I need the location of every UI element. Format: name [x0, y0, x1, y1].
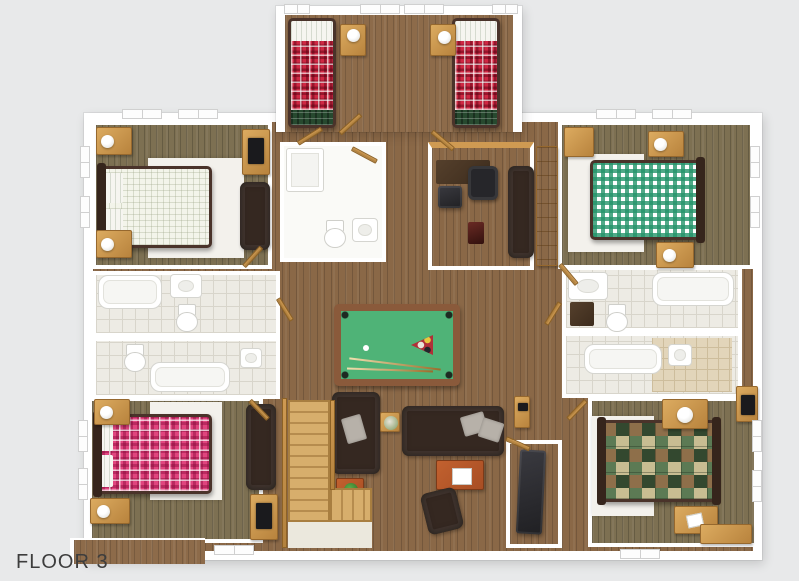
lamp — [100, 406, 113, 419]
window — [80, 146, 90, 178]
double-bed-lodge-quilt — [600, 420, 718, 502]
window — [284, 4, 310, 14]
lamp — [347, 29, 360, 42]
stair-landing — [288, 518, 372, 548]
wardrobe — [564, 127, 594, 157]
window — [750, 196, 760, 228]
window — [78, 468, 88, 500]
bench-sofa — [240, 182, 270, 250]
staircase-lower-run — [330, 488, 372, 522]
nightstand — [662, 399, 708, 429]
window — [404, 4, 444, 14]
closet-shelves — [536, 146, 558, 266]
double-bed-green-gingham — [590, 160, 702, 240]
sink — [668, 344, 692, 366]
office-chair — [468, 166, 498, 200]
bathtub — [584, 344, 662, 374]
window — [122, 109, 162, 119]
window — [178, 109, 218, 119]
water-pitcher — [438, 31, 451, 44]
tan-tile-floor — [652, 338, 732, 392]
double-bed-pink-plaid — [96, 414, 212, 494]
speaker — [468, 222, 484, 244]
lamp — [101, 238, 114, 251]
flowers — [384, 416, 398, 430]
nightstand — [430, 24, 456, 56]
twin-bed-red-plaid-right — [452, 18, 500, 128]
lamp — [677, 407, 693, 423]
tv — [741, 395, 755, 415]
window — [652, 109, 692, 119]
twin-bed-red-plaid-left — [288, 18, 336, 128]
tv — [248, 138, 264, 164]
tv — [256, 503, 272, 529]
toilet — [124, 344, 144, 372]
flower-table — [380, 412, 400, 432]
window — [492, 4, 518, 14]
pool-cue — [347, 367, 433, 372]
dresser-tv — [250, 494, 278, 540]
dark-equipment — [516, 449, 546, 534]
dresser-tv — [242, 129, 270, 175]
window — [620, 549, 660, 559]
sofa-vertical — [332, 392, 380, 474]
stair-railing — [330, 400, 335, 490]
lamp — [97, 505, 110, 518]
billiard-rack — [411, 335, 433, 355]
toilet — [176, 304, 196, 332]
bench-sofa — [246, 404, 276, 490]
lamp — [654, 138, 667, 151]
nightstand — [656, 242, 694, 268]
lamp — [101, 135, 114, 148]
window — [214, 545, 254, 555]
floor-label: FLOOR 3 — [16, 551, 109, 574]
window — [80, 196, 90, 228]
cube-seat — [438, 186, 462, 208]
pool-table — [334, 304, 460, 386]
shower — [286, 148, 324, 192]
lamp — [663, 249, 676, 262]
toilet — [606, 304, 626, 332]
window — [78, 420, 88, 452]
nightstand — [96, 230, 132, 258]
sink — [352, 218, 378, 242]
wall-cabinet — [514, 396, 530, 428]
sink — [240, 348, 262, 368]
window — [360, 4, 400, 14]
nightstand — [96, 127, 132, 155]
coffee-table — [436, 460, 484, 490]
window — [752, 470, 762, 502]
game-console — [452, 468, 472, 485]
window — [752, 420, 762, 452]
desk — [700, 524, 752, 544]
toilet — [324, 220, 344, 248]
nightstand — [94, 399, 130, 425]
nightstand — [340, 24, 366, 56]
bathtub — [150, 362, 230, 392]
vanity — [570, 302, 594, 326]
study-sofa — [508, 166, 534, 258]
nightstand — [648, 131, 684, 157]
bathtub — [98, 275, 162, 309]
window — [750, 146, 760, 178]
bathtub — [652, 272, 734, 306]
nightstand — [90, 498, 130, 524]
sofa-horizontal — [402, 406, 504, 456]
sink — [170, 274, 202, 298]
floor-plan-render: FLOOR 3 — [0, 0, 799, 581]
stair-wall — [282, 398, 287, 548]
console-table — [736, 386, 758, 422]
window — [596, 109, 636, 119]
cue-ball — [363, 345, 369, 351]
staircase-upper-run — [288, 400, 330, 522]
